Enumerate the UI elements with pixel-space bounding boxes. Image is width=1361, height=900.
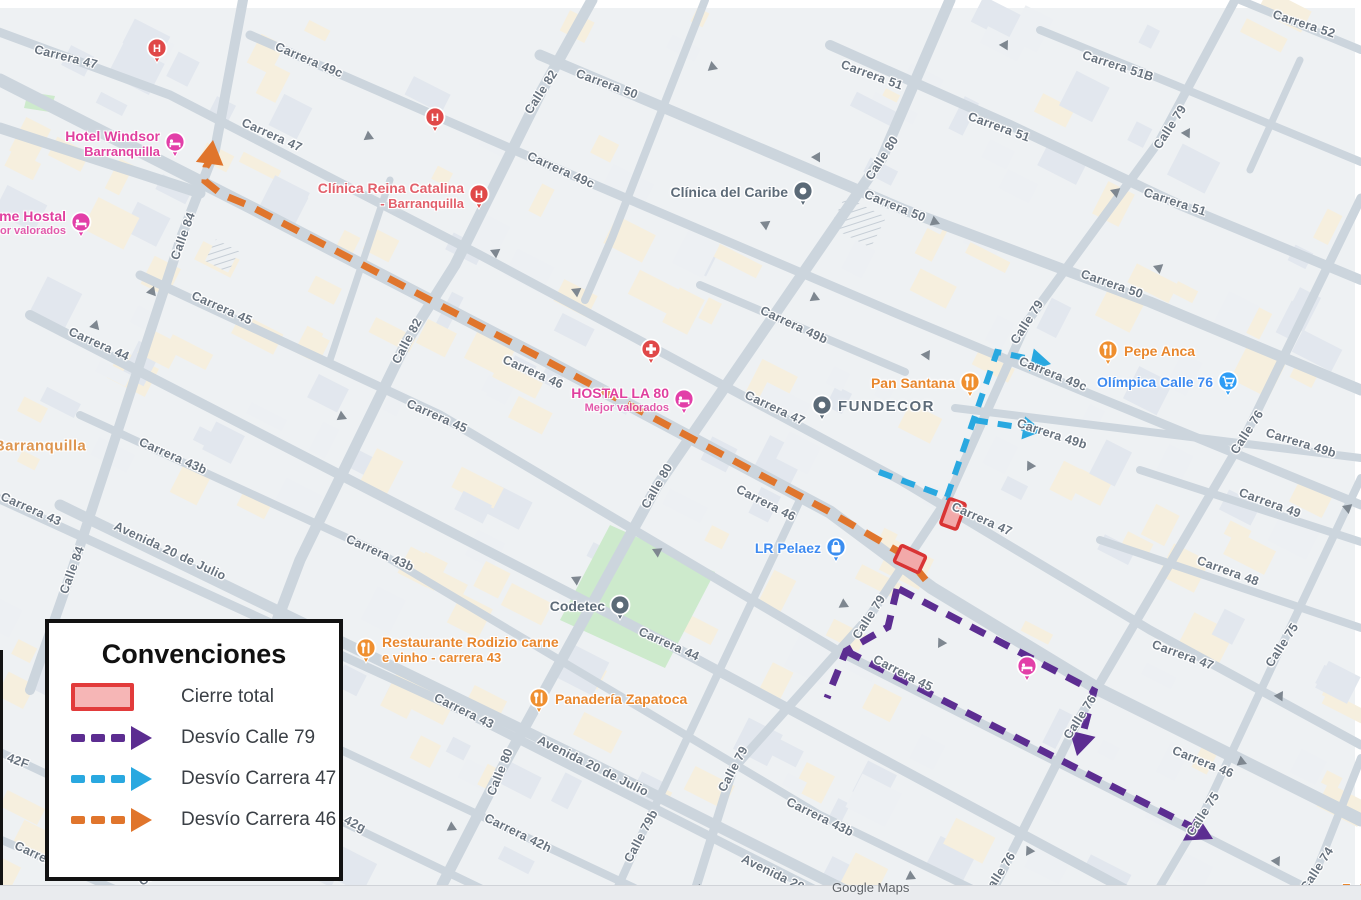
legend-title: Convenciones [59,639,329,670]
legend-item-label: Desvío Carrera 47 [181,768,336,790]
city-label: Barranquilla [0,438,86,455]
place-icon[interactable] [790,179,816,214]
hotel-icon[interactable] [68,210,94,245]
restaurant-icon[interactable] [353,636,379,671]
restaurant-icon[interactable] [957,370,983,405]
poi-label[interactable]: LR Pelaez [755,541,821,556]
poi-label[interactable]: Panadería Zapatoca [555,692,687,707]
poi-label[interactable]: Pepe Anca [1124,344,1195,359]
hotel-icon[interactable] [1014,654,1040,689]
hotel-icon[interactable] [162,130,188,165]
legend-rows: Cierre totalDesvío Calle 79Desvío Carrer… [49,676,339,840]
poi-label[interactable]: FUNDECOR [838,399,935,414]
poi-label[interactable]: Clínica del Caribe [671,185,788,200]
place-icon[interactable] [607,593,633,628]
restaurant-icon[interactable] [526,686,552,721]
place-icon[interactable] [809,393,835,428]
legend-item-label: Desvío Carrera 46 [181,809,336,831]
dashed-arrow-icon [71,726,181,750]
dashed-arrow-icon [71,767,181,791]
svg-text:H: H [153,43,161,55]
map-screenshot: Carrera 47Carrera 49cCarrera 50Carrera 5… [0,0,1361,900]
poi-label[interactable]: Codetec [550,599,605,614]
hospital-icon[interactable]: H [466,182,492,217]
legend-item-label: Cierre total [181,686,274,708]
poi-label[interactable]: Restaurante Rodizio carnee vinho - carre… [382,635,559,665]
hotel-icon[interactable] [671,387,697,422]
restaurant-icon[interactable] [1095,338,1121,373]
cart-icon[interactable] [1215,369,1241,404]
legend-item: Desvío Calle 79 [49,717,339,758]
svg-text:H: H [475,189,483,201]
medical-icon[interactable] [638,337,664,372]
poi-label[interactable]: Olímpica Calle 76 [1097,375,1213,390]
svg-text:H: H [431,112,439,124]
dashed-arrow-icon [71,808,181,832]
shopping-icon[interactable] [823,535,849,570]
poi-label[interactable]: Clínica Reina Catalina- Barranquilla [318,181,464,211]
legend-item: Desvío Carrera 47 [49,758,339,799]
hospital-icon[interactable]: H [144,36,170,71]
poi-label[interactable]: Pan Santana [871,376,955,391]
legend: Convenciones Cierre totalDesvío Calle 79… [45,619,343,881]
legend-item: Desvío Carrera 46 [49,799,339,840]
poi-label[interactable]: HOSTAL LA 80Mejor valorados [571,386,669,416]
google-maps-watermark: Google Maps [832,880,909,895]
legend-item: Cierre total [49,676,339,717]
hospital-icon[interactable]: H [422,105,448,140]
legend-item-label: Desvío Calle 79 [181,727,315,749]
closure-swatch [71,683,181,711]
poi-label[interactable]: Hotel WindsorBarranquilla [65,129,160,159]
poi-label[interactable]: me Hostalor valorados [0,209,66,239]
bottom-bar [0,885,1361,900]
